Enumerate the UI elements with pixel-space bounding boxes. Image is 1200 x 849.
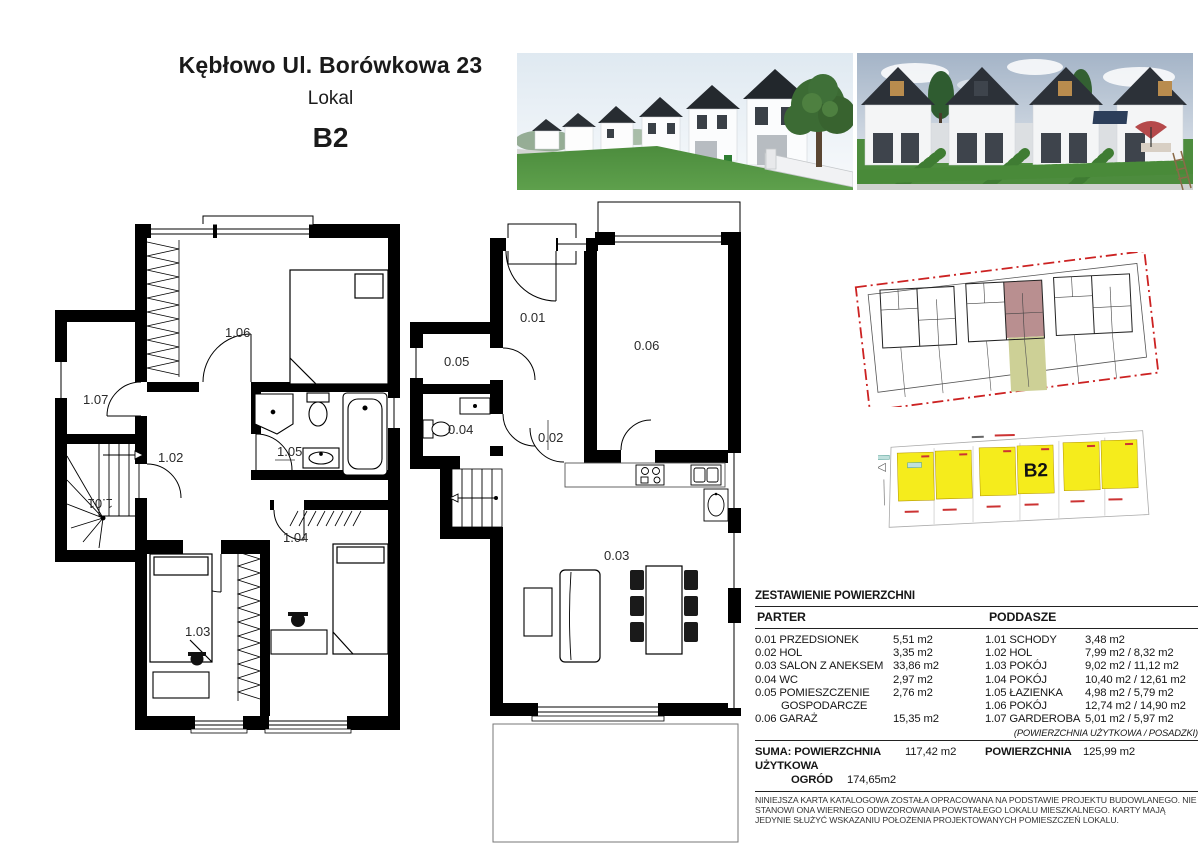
table-row: 1.06 POKÓJ12,74 m2 / 14,90 m2 [985, 700, 1198, 713]
table-title: ZESTAWIENIE POWIERZCHNI [755, 589, 1198, 602]
plot-diagram-drawing: B2 [878, 428, 1153, 533]
bathtub-icon [343, 393, 387, 475]
top-dimension-mark [972, 436, 984, 438]
entry-sidelight [558, 238, 586, 251]
room-labels: 0.01 0.02 0.03 0.04 0.05 0.06 [444, 310, 659, 563]
render-rear-view [857, 53, 1193, 190]
bed-icon [290, 270, 388, 384]
table-row: 1.05 ŁAZIENKA4,98 m2 / 5,79 m2 [985, 687, 1198, 700]
table-row: 1.02 HOL7,99 m2 / 8,32 m2 [985, 647, 1198, 660]
sofa-icon [560, 570, 600, 662]
solar-panel [1093, 111, 1128, 124]
suma-label: SUMA: POWIERZCHNIA UŻYTKOWA [755, 745, 905, 773]
room-label-1-04: 1.04 [283, 530, 308, 545]
summary-line-2: OGRÓD 174,65m2 [755, 773, 1198, 787]
parter-plan-drawing: 0.01 0.02 0.03 0.04 0.05 0.06 [408, 198, 743, 848]
kitchen-icons [565, 463, 728, 521]
table-row: 1.04 POKÓJ10,40 m2 / 12,61 m2 [985, 674, 1198, 687]
plot-parcel-3 [979, 447, 1016, 496]
parter-header: PARTER [755, 609, 987, 626]
table-row: 0.03 SALON Z ANEKSEM33,86 m2 [755, 660, 985, 673]
divider [755, 791, 1198, 792]
room-label-0-02: 0.02 [538, 430, 563, 445]
site-plan [848, 252, 1163, 407]
table-row: 0.05 POMIESZCZENIE2,76 m2 [755, 687, 985, 700]
room-label-0-03: 0.03 [604, 548, 629, 563]
stairs-icon [450, 469, 502, 527]
table-row: 0.04 WC2,97 m2 [755, 674, 985, 687]
coffee-table-icon [524, 588, 552, 636]
front-path [857, 184, 1193, 190]
table-row: 1.03 POKÓJ9,02 m2 / 11,12 m2 [985, 660, 1198, 673]
table-row: 0.06 GARAŻ15,35 m2 [755, 713, 985, 726]
plot-parcel-6 [1101, 440, 1138, 489]
poddasze-column: 1.01 SCHODY3,48 m2 1.02 HOL7,99 m2 / 8,3… [985, 634, 1198, 738]
disclaimer-text: NINIEJSZA KARTA KATALOGOWA ZOSTAŁA OPRAC… [755, 795, 1198, 825]
table-row: 0.01 PRZEDSIONEK5,51 m2 [755, 634, 985, 647]
table-header-row: PARTER PODDASZE [755, 609, 1198, 626]
bed-icon-3 [333, 544, 388, 654]
room-label-1-06: 1.06 [225, 325, 250, 340]
site-plan-drawing [848, 252, 1163, 407]
divider [755, 628, 1198, 629]
desk-chair-icon-2 [271, 612, 327, 654]
title-block: Kębłowo Ul. Borówkowa 23 Lokal B2 [158, 52, 503, 154]
poddasze-plan-drawing: 1.06 1.07 1.02 1.05 1.04 1.03 1.01 [55, 212, 400, 734]
plot-unit-label: B2 [1023, 460, 1048, 482]
plot-parcel-2 [935, 450, 972, 499]
dining-set-icon [630, 566, 698, 654]
sink-icon [303, 448, 339, 468]
table-body: 0.01 PRZEDSIONEK5,51 m2 0.02 HOL3,35 m2 … [755, 631, 1198, 738]
divider [755, 740, 1198, 741]
room-label-1-05: 1.05 [277, 444, 302, 459]
unit-id: B2 [158, 122, 503, 154]
garden-area [1008, 336, 1047, 392]
parter-floor-plan: 0.01 0.02 0.03 0.04 0.05 0.06 [408, 198, 743, 848]
room-label-0-05: 0.05 [444, 354, 469, 369]
table-row: 1.07 GARDEROBA5,01 m2 / 5,97 m2 [985, 713, 1198, 726]
poddasze-header: PODDASZE [987, 609, 1198, 626]
render-front-view [517, 53, 853, 190]
table-row: 0.02 HOL3,35 m2 [755, 647, 985, 660]
render-front-scene [517, 53, 853, 190]
divider [755, 606, 1198, 607]
toilet-icon [307, 393, 329, 426]
room-label-0-04: 0.04 [448, 422, 473, 437]
bed-icon-2 [150, 554, 212, 662]
ogrod-value: 174,65m2 [847, 773, 896, 787]
table-row: 1.01 SCHODY3,48 m2 [985, 634, 1198, 647]
room-label-1-03: 1.03 [185, 624, 210, 639]
address-title: Kębłowo Ul. Borówkowa 23 [158, 52, 503, 79]
plot-diagram: B2 [878, 428, 1153, 533]
uzytkowa-value: 117,42 m2 [905, 745, 985, 773]
lokal-label: Lokal [158, 88, 503, 110]
poddasze-floor-plan: 1.06 1.07 1.02 1.05 1.04 1.03 1.01 [55, 212, 400, 734]
room-label-0-06: 0.06 [634, 338, 659, 353]
garage-canopy-outline [598, 202, 740, 236]
plot-parcel-5 [1063, 442, 1100, 491]
render-rear-scene [857, 53, 1193, 190]
powierzchnia-label: POWIERZCHNIA [985, 745, 1083, 773]
plot-parcel-1 [897, 452, 934, 501]
room-label-0-01: 0.01 [520, 310, 545, 325]
door-arcs [503, 251, 651, 462]
powierzchnia-value: 125,99 m2 [1083, 745, 1135, 773]
table-row: GOSPODARCZE [755, 700, 985, 713]
ogrod-label: OGRÓD [791, 773, 847, 787]
door-openings [490, 232, 721, 463]
terrace-outline [493, 724, 738, 842]
room-label-1-01: 1.01 [88, 496, 113, 511]
summary-block: SUMA: POWIERZCHNIA UŻYTKOWA 117,42 m2 PO… [755, 743, 1198, 789]
parter-column: 0.01 PRZEDSIONEK5,51 m2 0.02 HOL3,35 m2 … [755, 634, 985, 738]
catalog-card-page: Kębłowo Ul. Borówkowa 23 Lokal B2 [0, 0, 1200, 849]
wall-pillar [766, 149, 776, 169]
summary-line-1: SUMA: POWIERZCHNIA UŻYTKOWA 117,42 m2 PO… [755, 745, 1198, 773]
table-footnote: (POWIERZCHNIA UŻYTKOWA / POSADZKI) [985, 727, 1198, 738]
room-label-1-02: 1.02 [158, 450, 183, 465]
area-table: ZESTAWIENIE POWIERZCHNI PARTER PODDASZE … [755, 589, 1198, 825]
room-label-1-07: 1.07 [83, 392, 108, 407]
